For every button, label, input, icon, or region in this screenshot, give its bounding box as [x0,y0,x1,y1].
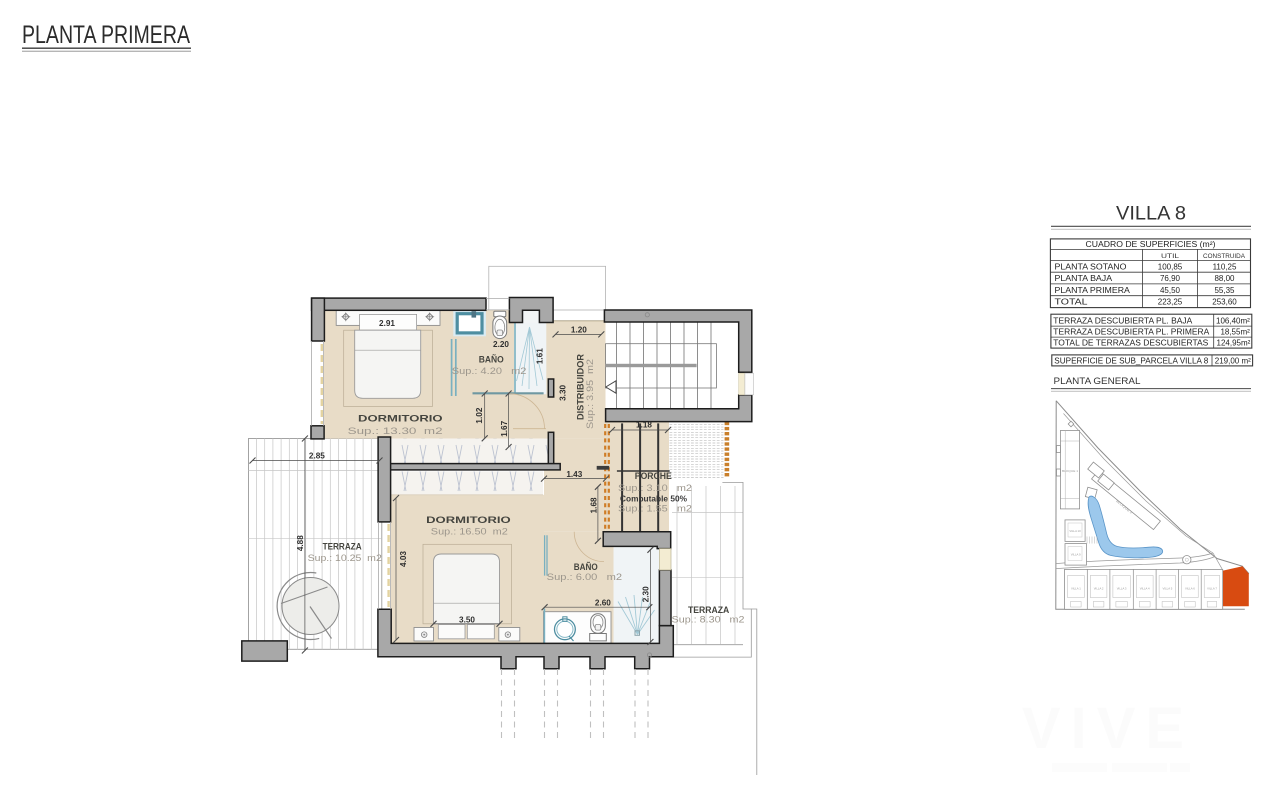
svg-text:TERRAZA: TERRAZA [323,542,362,552]
svg-text:1.43: 1.43 [566,470,582,479]
svg-text:BAÑO: BAÑO [574,562,598,572]
svg-text:DISTRIBUIDOR: DISTRIBUIDOR [575,354,585,420]
svg-text:2.85: 2.85 [309,451,325,460]
svg-text:Sup.: 4.20 m2: Sup.: 4.20 m2 [452,366,527,376]
svg-text:VILLA 3: VILLA 3 [1117,587,1127,591]
svg-text:45,50: 45,50 [1160,286,1181,295]
svg-text:UTIL: UTIL [1161,253,1179,260]
svg-text:1.18: 1.18 [636,421,652,430]
svg-text:2.20: 2.20 [493,340,509,349]
svg-text:Sup.: 3.95 m2: Sup.: 3.95 m2 [585,359,595,429]
svg-text:CUADRO DE SUPERFICIES (m²): CUADRO DE SUPERFICIES (m²) [1086,240,1216,249]
svg-text:253,60: 253,60 [1212,298,1237,307]
svg-text:1.67: 1.67 [500,420,509,436]
svg-text:Sup.: 6.00 m2: Sup.: 6.00 m2 [547,572,622,582]
svg-text:2.91: 2.91 [379,319,395,328]
svg-text:76,90: 76,90 [1160,274,1181,283]
svg-text:TERRAZA DESCUBIERTA PL. PRIMER: TERRAZA DESCUBIERTA PL. PRIMERA [1053,327,1210,336]
svg-text:1.20: 1.20 [571,326,587,335]
svg-text:VILLA 5: VILLA 5 [1162,587,1172,591]
svg-text:TERRAZA DESCUBIERTA PL. BAJA: TERRAZA DESCUBIERTA PL. BAJA [1053,316,1193,325]
svg-text:PLANTA PRIMERA: PLANTA PRIMERA [22,21,190,49]
svg-text:VILLA 2: VILLA 2 [1094,587,1104,591]
svg-text:Sup.: 16.50 m2: Sup.: 16.50 m2 [431,527,508,537]
svg-text:TOTAL DE TERRAZAS DESCUBIERTAS: TOTAL DE TERRAZAS DESCUBIERTAS [1053,338,1208,347]
svg-text:106,40m²: 106,40m² [1216,316,1250,325]
svg-text:PLANTA BAJA: PLANTA BAJA [1055,274,1113,283]
svg-text:PLANTA SOTANO: PLANTA SOTANO [1055,263,1127,272]
svg-text:110,25: 110,25 [1213,263,1237,272]
svg-text:4.88: 4.88 [296,535,305,551]
svg-text:1.68: 1.68 [590,497,599,513]
svg-text:Sup.: 10.25 m2: Sup.: 10.25 m2 [308,553,382,563]
svg-text:BAÑO: BAÑO [479,355,504,365]
svg-text:3.30: 3.30 [558,384,567,400]
svg-text:55,35: 55,35 [1214,286,1235,295]
svg-text:2.30: 2.30 [641,586,650,602]
svg-text:223,25: 223,25 [1158,298,1183,307]
svg-text:TERRAZA: TERRAZA [688,605,730,615]
svg-text:124,95m²: 124,95m² [1217,338,1251,347]
svg-text:VILLA 10: VILLA 10 [1069,529,1081,533]
svg-text:VIVE: VIVE [1022,696,1194,761]
svg-text:CONSTRUIDA: CONSTRUIDA [1203,253,1245,260]
svg-text:VILLA 8: VILLA 8 [1116,203,1186,225]
svg-text:VILLA 6: VILLA 6 [1185,587,1195,591]
svg-text:PLANTA PRIMERA: PLANTA PRIMERA [1055,286,1131,295]
svg-text:PLANTA GENERAL: PLANTA GENERAL [1054,376,1142,387]
svg-text:4.03: 4.03 [399,551,408,567]
svg-text:88,00: 88,00 [1214,274,1235,283]
svg-text:Sup.: 1.55 m2: Sup.: 1.55 m2 [618,504,692,514]
svg-text:Computable 50%: Computable 50% [620,494,687,504]
svg-text:DORMITORIO: DORMITORIO [426,515,511,525]
svg-text:BLOQUE 1: BLOQUE 1 [1062,469,1078,473]
svg-text:3.50: 3.50 [459,615,475,624]
svg-text:Sup.: 3.10 m2: Sup.: 3.10 m2 [618,483,692,493]
svg-text:DORMITORIO: DORMITORIO [358,413,443,423]
svg-text:SUPERFICIE DE SUB_PARCELA VILL: SUPERFICIE DE SUB_PARCELA VILLA 8 [1054,356,1209,365]
svg-text:VILLA 4: VILLA 4 [1140,587,1150,591]
svg-text:100,85: 100,85 [1158,263,1183,272]
svg-text:Sup.: 8.30 m2: Sup.: 8.30 m2 [672,614,745,624]
svg-text:18,55m²: 18,55m² [1220,327,1250,336]
svg-text:1.61: 1.61 [535,348,544,364]
svg-text:TOTAL: TOTAL [1055,298,1089,307]
svg-text:2.60: 2.60 [595,599,611,608]
svg-text:Sup.: 13.30 m2: Sup.: 13.30 m2 [348,426,443,436]
svg-text:VILLA 1: VILLA 1 [1071,587,1081,591]
svg-text:1.02: 1.02 [475,407,484,423]
svg-text:PORCHE: PORCHE [635,471,672,481]
svg-text:VILLA 9: VILLA 9 [1071,553,1081,557]
svg-text:219,00 m²: 219,00 m² [1215,356,1251,365]
svg-text:VILLA 7: VILLA 7 [1207,587,1217,591]
